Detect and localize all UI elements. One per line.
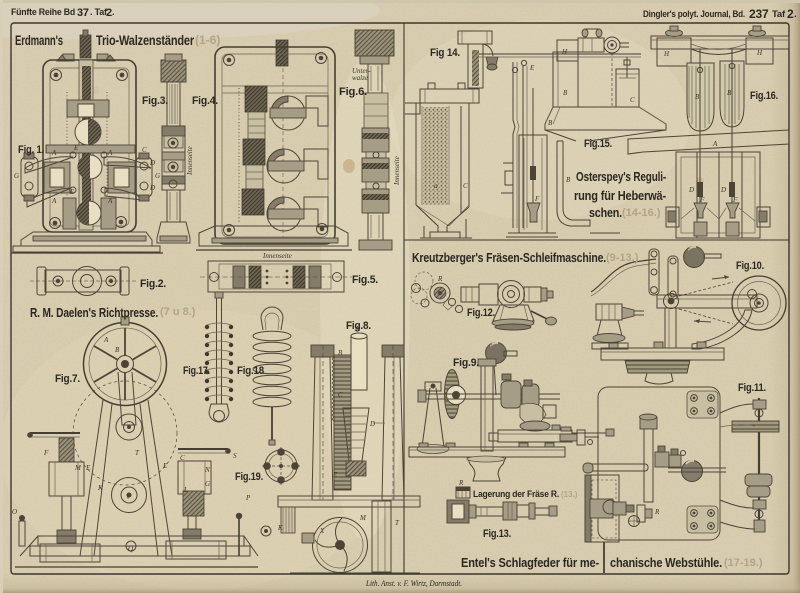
svg-text:B: B	[566, 176, 571, 184]
svg-text:(9-13.): (9-13.)	[606, 252, 639, 264]
svg-text:Fig.11.: Fig.11.	[738, 382, 766, 394]
svg-text:Fig.13.: Fig.13.	[483, 528, 511, 540]
svg-text:Q: Q	[128, 545, 133, 553]
svg-text:Innenseite: Innenseite	[262, 252, 292, 260]
svg-text:D: D	[688, 186, 694, 194]
svg-text:Fig.10.: Fig.10.	[736, 260, 764, 272]
svg-text:Fig.15.: Fig.15.	[584, 138, 612, 150]
svg-text:G: G	[155, 172, 160, 180]
svg-text:Innenseite: Innenseite	[393, 156, 401, 186]
svg-text:(13.): (13.)	[561, 490, 578, 499]
svg-text:(14-16.): (14-16.)	[622, 207, 661, 219]
svg-text:Fig.16.: Fig.16.	[750, 90, 778, 102]
svg-text:K: K	[277, 524, 283, 532]
svg-text:a: a	[434, 182, 438, 190]
svg-text:Kreutzberger's Fräsen-Schleifm: Kreutzberger's Fräsen-Schleifmaschine.	[412, 250, 606, 265]
svg-text:G: G	[14, 172, 19, 180]
svg-text:Fig.8.: Fig.8.	[346, 320, 371, 332]
svg-text:C: C	[142, 146, 147, 154]
svg-text:M: M	[74, 464, 82, 472]
svg-text:M: M	[359, 514, 367, 522]
svg-text:H: H	[663, 50, 670, 58]
svg-text:A: A	[107, 197, 113, 205]
svg-text:Innenseite: Innenseite	[186, 146, 194, 176]
svg-text:Lagerung der Fräse R.: Lagerung der Fräse R.	[473, 489, 559, 499]
svg-text:E: E	[69, 188, 75, 196]
svg-text:C: C	[338, 391, 343, 399]
svg-text:F: F	[732, 196, 738, 204]
svg-text:B: B	[338, 349, 343, 357]
svg-text:D: D	[369, 420, 375, 428]
svg-text:A: A	[103, 336, 109, 344]
svg-text:R: R	[437, 275, 443, 283]
svg-text:Fig.18: Fig.18	[237, 365, 264, 377]
svg-text:D: D	[149, 159, 155, 167]
svg-text:(7 u 8.): (7 u 8.)	[160, 306, 196, 318]
svg-text:Fünfte Reihe Bd: Fünfte Reihe Bd	[11, 7, 75, 17]
svg-text:Fig.17.: Fig.17.	[183, 365, 210, 377]
svg-text:schen.: schen.	[589, 205, 622, 220]
svg-text:Osterspey's Reguli-: Osterspey's Reguli-	[576, 169, 666, 184]
svg-text:chanische Webstühle.: chanische Webstühle.	[610, 555, 722, 570]
svg-text:.: .	[112, 7, 114, 17]
svg-text:N: N	[204, 466, 210, 474]
svg-text:Fig.6.: Fig.6.	[339, 86, 367, 98]
svg-text:Fig.4.: Fig.4.	[192, 95, 218, 107]
svg-text:F: F	[534, 195, 540, 203]
svg-text:D: D	[720, 186, 726, 194]
svg-text:37: 37	[77, 7, 89, 19]
svg-text:Taf: Taf	[772, 9, 786, 20]
svg-text:Dingler's polyt. Journal, Bd.: Dingler's polyt. Journal, Bd.	[643, 9, 745, 20]
svg-text:Entel's Schlagfeder für me-: Entel's Schlagfeder für me-	[461, 555, 599, 570]
svg-text:B: B	[563, 89, 568, 97]
svg-text:S: S	[233, 452, 237, 460]
svg-text:B: B	[115, 346, 120, 354]
svg-text:H: H	[756, 49, 763, 57]
svg-text:rung für Heberwä-: rung für Heberwä-	[574, 188, 666, 203]
svg-text:B: B	[727, 89, 732, 97]
svg-text:C: C	[630, 96, 635, 104]
svg-text:R: R	[458, 479, 464, 487]
svg-text:K: K	[97, 484, 103, 492]
svg-text:O: O	[12, 508, 17, 516]
svg-text:Fig.9.: Fig.9.	[453, 357, 479, 369]
svg-text:B: B	[548, 119, 553, 127]
svg-text:V: V	[126, 493, 131, 501]
svg-text:Lith. Anst. v. F. Wirtz, Darms: Lith. Anst. v. F. Wirtz, Darmstadt.	[365, 579, 462, 588]
svg-text:E: E	[529, 64, 535, 72]
svg-text:B: B	[695, 93, 700, 101]
svg-text:(1-6): (1-6)	[195, 33, 220, 47]
svg-text:Fig.12.: Fig.12.	[467, 307, 495, 319]
svg-text:A: A	[107, 149, 113, 157]
svg-text:A: A	[51, 149, 57, 157]
svg-text:Fig 14.: Fig 14.	[430, 47, 460, 59]
svg-text:G: G	[205, 480, 210, 488]
svg-text:A: A	[712, 140, 718, 148]
svg-text:237: 237	[749, 7, 769, 21]
svg-text:Fig.19.: Fig.19.	[235, 471, 263, 483]
svg-text:E: E	[73, 144, 79, 152]
svg-text:Fig.3.: Fig.3.	[142, 95, 168, 107]
svg-text:Fig.5.: Fig.5.	[352, 274, 378, 286]
svg-text:Fig.7.: Fig.7.	[55, 373, 80, 385]
svg-text:E: E	[85, 464, 91, 472]
svg-text:A: A	[51, 197, 57, 205]
svg-text:F: F	[699, 196, 705, 204]
svg-text:(17-19.): (17-19.)	[724, 557, 763, 569]
svg-text:F: F	[43, 449, 49, 457]
svg-text:walze: walze	[352, 74, 368, 82]
svg-text:2: 2	[787, 7, 794, 21]
svg-text:L: L	[183, 486, 188, 494]
svg-text:.: .	[794, 9, 796, 20]
svg-text:E: E	[332, 471, 338, 479]
svg-text:X: X	[319, 527, 325, 535]
svg-text:Trio-Walzenständer: Trio-Walzenständer	[96, 32, 195, 48]
svg-text:E: E	[162, 462, 168, 470]
svg-text:R. M. Daelen's Richtpresse.: R. M. Daelen's Richtpresse.	[30, 305, 158, 320]
svg-text:C: C	[463, 182, 468, 190]
svg-text:R: R	[654, 508, 660, 516]
svg-text:D: D	[149, 184, 155, 192]
svg-text:Fig. 1.: Fig. 1.	[18, 144, 44, 156]
svg-text:Erdmann's: Erdmann's	[15, 32, 63, 48]
svg-text:P: P	[245, 494, 251, 502]
svg-text:Fig.2.: Fig.2.	[140, 278, 166, 290]
